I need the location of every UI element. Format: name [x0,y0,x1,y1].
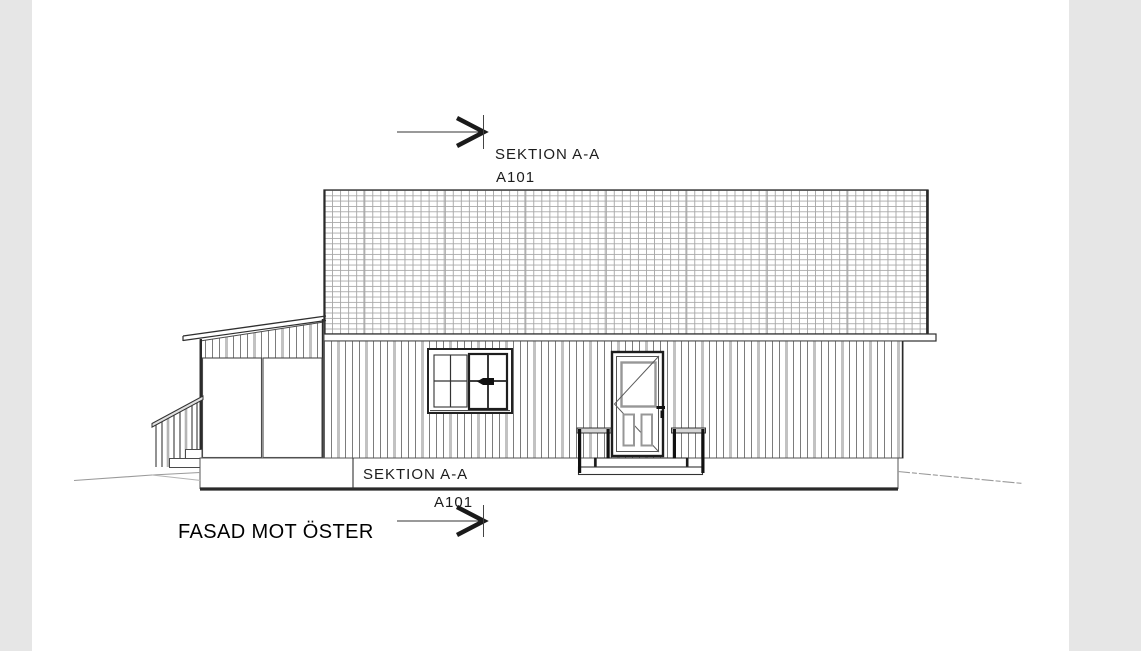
stair-step-upper [186,450,203,459]
ground-line-left [74,473,200,481]
stair-step-lower [170,459,203,468]
section-top-sheet-number: A101 [496,169,535,186]
window [428,349,512,413]
door-handle-icon [657,406,666,409]
section-bottom-sheet-number: A101 [434,494,473,511]
roof-tile-grid [324,190,928,334]
foundation [200,458,898,489]
drawing-title: FASAD MOT ÖSTER [178,521,374,544]
foundation-band [200,458,898,489]
annex-door-left [203,358,262,458]
stair-railing [152,396,203,468]
eave-fascia [320,334,936,341]
ground-line-right [898,472,1023,484]
porch-step-upper [595,458,689,467]
door-lower-panel-right [642,415,653,446]
section-bottom-label: SEKTION A-A [363,466,468,483]
porch-post [578,429,581,473]
section-top-label: SEKTION A-A [495,146,600,163]
porch-post [607,429,610,459]
elevation-linework [0,0,1141,651]
drawing-viewport: SEKTION A-A A101 SEKTION A-A A101 FASAD … [0,0,1141,651]
stair-handrail [152,396,203,427]
section-marker-top [397,115,484,149]
door-lower-panel-left [624,415,635,446]
main-roof [320,190,936,341]
porch-step-lower [579,467,703,475]
annex [183,316,326,458]
entrance-door [612,352,665,456]
annex-door-right [263,358,322,458]
ground-line-left-front [152,475,201,481]
porch-post [701,429,704,473]
porch-rail [577,428,611,433]
porch-rail [672,428,706,433]
porch-post [673,429,676,459]
door-glass-panel [622,363,656,407]
door-lock-icon [661,411,665,419]
